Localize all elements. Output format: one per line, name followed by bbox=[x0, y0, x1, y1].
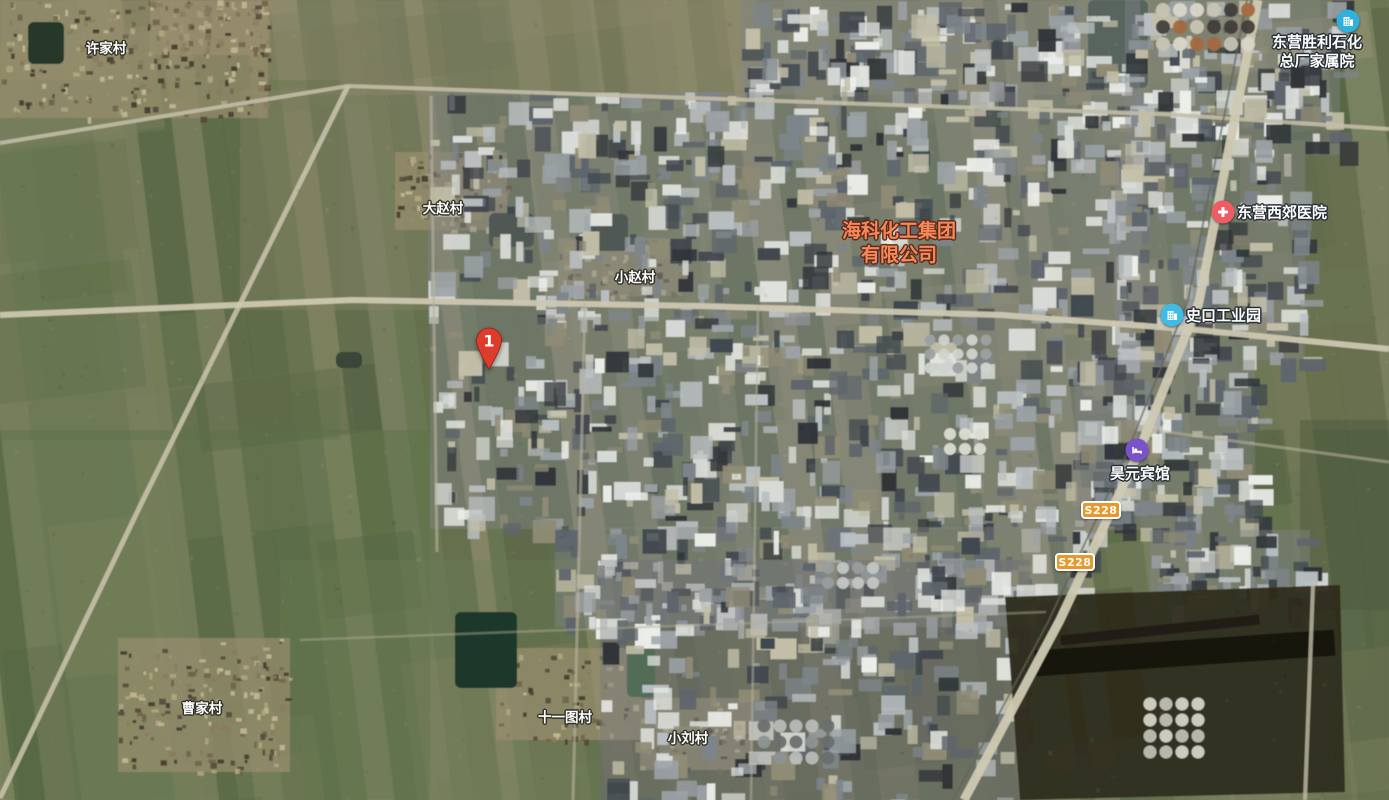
village-label: 许家村 bbox=[86, 37, 127, 57]
highlighted-poi-line: 海科化工集团 bbox=[842, 219, 956, 243]
road-shield: S228 bbox=[1081, 501, 1121, 519]
road-shield: S228 bbox=[1055, 553, 1095, 571]
poi-label-line: 总厂家属院 bbox=[1272, 52, 1362, 71]
village-label: 大赵村 bbox=[423, 197, 464, 217]
hotel-icon[interactable] bbox=[1126, 439, 1149, 462]
map-marker[interactable]: 1 bbox=[474, 326, 504, 370]
village-label: 小刘村 bbox=[668, 727, 709, 747]
village-label: 曹家村 bbox=[182, 697, 223, 717]
village-label: 小赵村 bbox=[615, 266, 656, 286]
map-labels-layer: 海科化工集团有限公司东营胜利石化总厂家属院东营西郊医院史口工业园昊元宾馆许家村大… bbox=[0, 0, 1389, 800]
highlighted-poi-line: 有限公司 bbox=[842, 243, 956, 267]
building-icon[interactable] bbox=[1337, 10, 1360, 33]
hospital-icon[interactable] bbox=[1212, 201, 1235, 224]
poi-label-line: 东营胜利石化 bbox=[1272, 33, 1362, 52]
poi-label[interactable]: 东营胜利石化总厂家属院 bbox=[1272, 33, 1362, 71]
satellite-map[interactable]: 海科化工集团有限公司东营胜利石化总厂家属院东营西郊医院史口工业园昊元宾馆许家村大… bbox=[0, 0, 1389, 800]
village-label: 十一图村 bbox=[538, 706, 592, 726]
poi-label[interactable]: 东营西郊医院 bbox=[1237, 202, 1327, 223]
poi-label[interactable]: 昊元宾馆 bbox=[1110, 465, 1170, 484]
poi-label-line: 昊元宾馆 bbox=[1110, 465, 1170, 484]
building-icon[interactable] bbox=[1161, 304, 1184, 327]
highlighted-poi-label[interactable]: 海科化工集团有限公司 bbox=[842, 219, 956, 267]
marker-number: 1 bbox=[483, 332, 494, 351]
poi-label[interactable]: 史口工业园 bbox=[1186, 305, 1261, 326]
